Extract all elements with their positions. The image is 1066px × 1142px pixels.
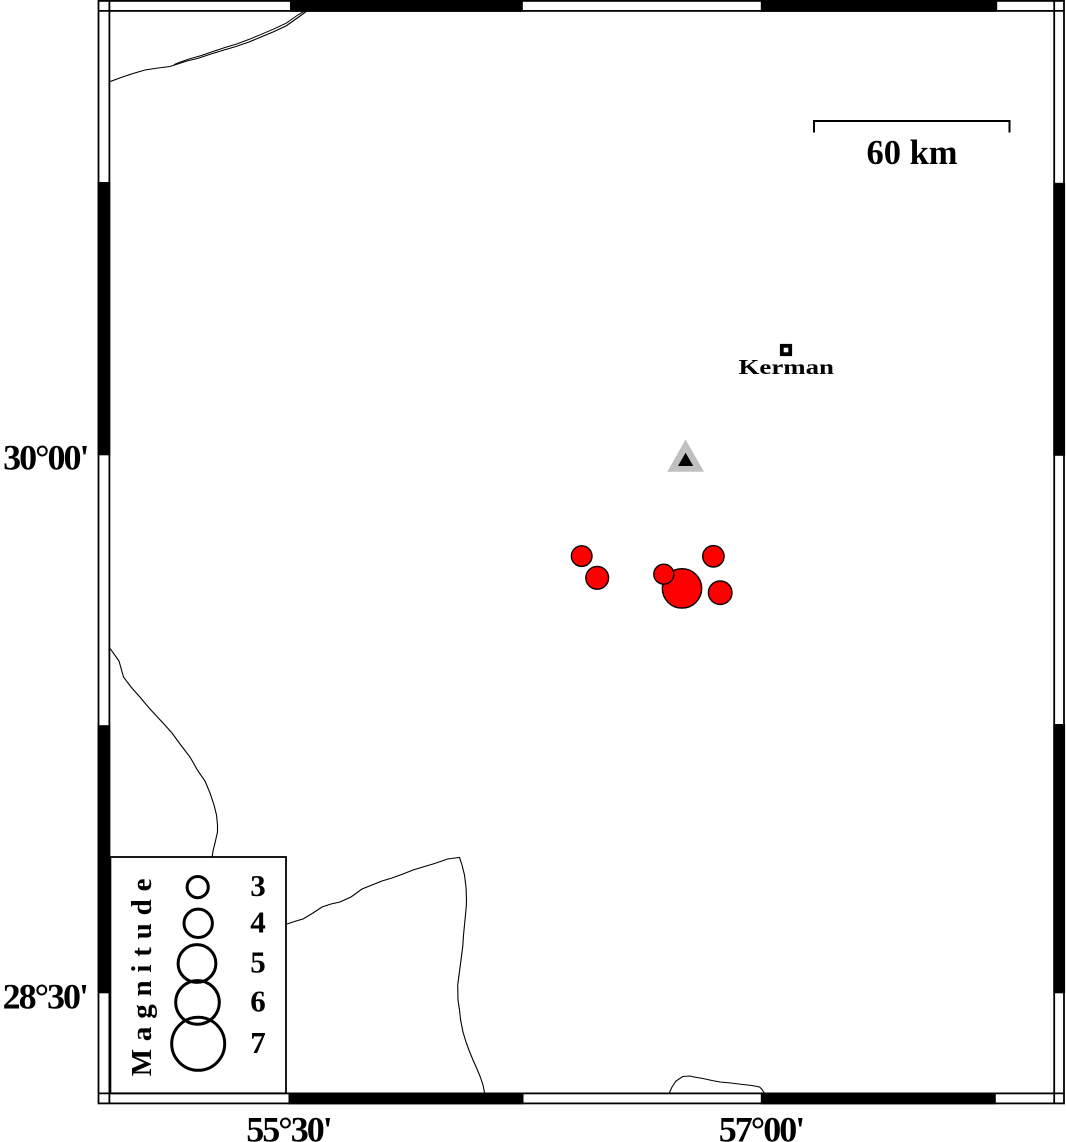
svg-text:3: 3 xyxy=(250,868,266,903)
svg-text:Magnitude: Magnitude xyxy=(126,871,158,1077)
svg-text:6: 6 xyxy=(250,984,266,1019)
svg-text:7: 7 xyxy=(250,1025,266,1060)
svg-text:57°00': 57°00' xyxy=(719,1110,803,1142)
svg-text:5: 5 xyxy=(250,945,266,980)
svg-text:28°30': 28°30' xyxy=(3,977,87,1017)
svg-text:Kerman: Kerman xyxy=(739,355,835,379)
svg-text:55°30': 55°30' xyxy=(246,1110,330,1142)
svg-text:30°00': 30°00' xyxy=(3,438,87,478)
svg-text:60 km: 60 km xyxy=(866,134,957,172)
svg-text:4: 4 xyxy=(250,904,266,939)
